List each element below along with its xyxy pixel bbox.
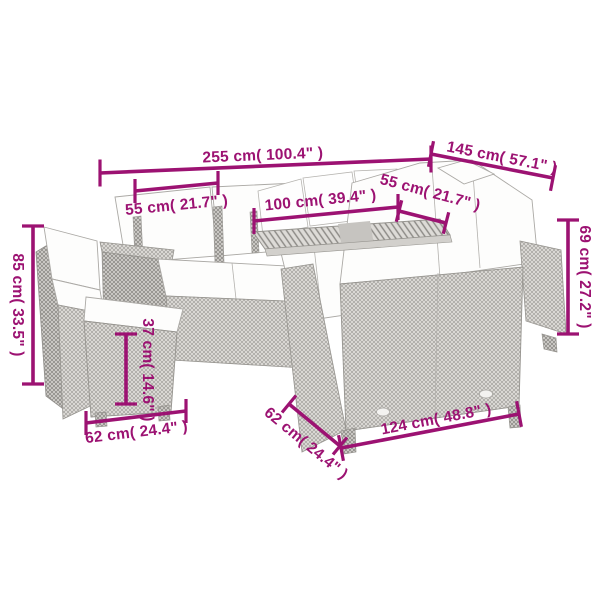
dimension-ottoman-height-label: 37 cm( 14.6" ) bbox=[139, 318, 156, 421]
furniture-illustration: 255 cm( 100.4" ) 145 cm( 57.1" ) 55 cm( … bbox=[0, 0, 600, 600]
dimension-back-height: 85 cm( 33.5" ) bbox=[9, 226, 44, 384]
wicker-hole bbox=[377, 408, 390, 416]
dimension-back-height-label: 85 cm( 33.5" ) bbox=[9, 253, 26, 356]
ottoman bbox=[84, 297, 183, 427]
wicker-hole bbox=[480, 390, 493, 398]
dimension-arm-height-label: 69 cm( 27.2" ) bbox=[576, 225, 593, 328]
product-dimension-diagram: 255 cm( 100.4" ) 145 cm( 57.1" ) 55 cm( … bbox=[0, 0, 600, 600]
right-sofa-back bbox=[340, 267, 523, 431]
